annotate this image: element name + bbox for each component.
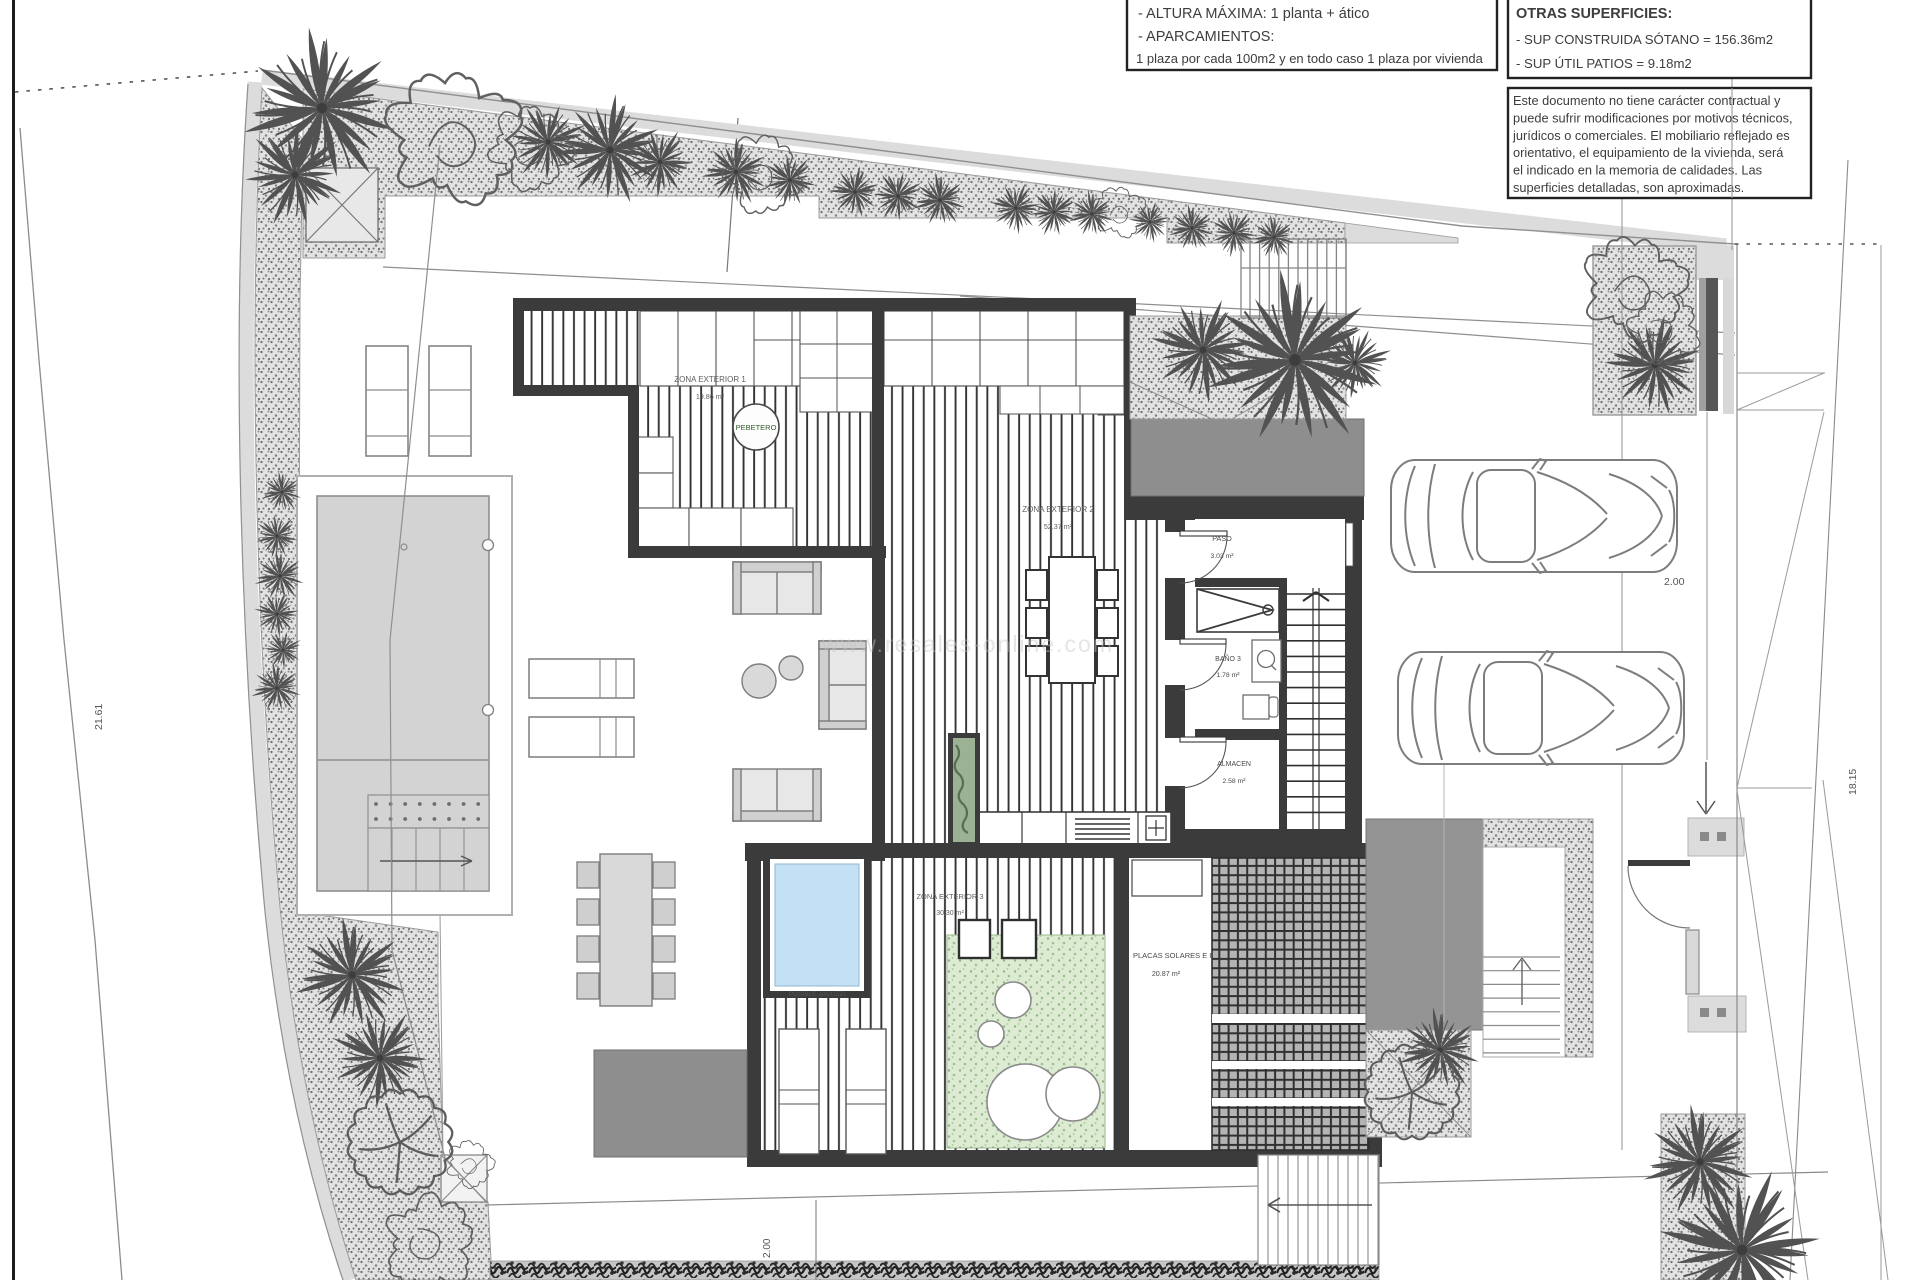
svg-text:ZONA EXTERIOR 2: ZONA EXTERIOR 2 bbox=[1022, 505, 1094, 514]
svg-text:BAÑO 3: BAÑO 3 bbox=[1215, 654, 1241, 663]
svg-text:2.58 m²: 2.58 m² bbox=[1222, 778, 1246, 785]
svg-text:19.86 m²: 19.86 m² bbox=[696, 392, 725, 401]
svg-text:Este documento no tiene caráct: Este documento no tiene carácter contrac… bbox=[1513, 93, 1781, 108]
svg-text:POSIBLE JACUZZI: POSIBLE JACUZZI bbox=[789, 991, 846, 998]
svg-text:- APARCAMIENTOS:: - APARCAMIENTOS: bbox=[1138, 29, 1274, 45]
svg-text:superficies detalladas, son ap: superficies detalladas, son aproximadas. bbox=[1513, 180, 1744, 195]
svg-text:2.00: 2.00 bbox=[1664, 576, 1685, 588]
svg-text:puede sufrir modificaciones po: puede sufrir modificaciones por motivos … bbox=[1513, 110, 1793, 125]
svg-text:ZONA EXTERIOR 1: ZONA EXTERIOR 1 bbox=[674, 375, 746, 384]
svg-text:21.61: 21.61 bbox=[93, 704, 105, 730]
svg-text:orientativo, el equipamiento d: orientativo, el equipamiento de la vivie… bbox=[1513, 145, 1784, 160]
svg-text:30.30 m²: 30.30 m² bbox=[936, 910, 964, 917]
svg-text:- ALTURA MÁXIMA: 1 planta + át: - ALTURA MÁXIMA: 1 planta + ático bbox=[1138, 5, 1369, 22]
svg-text:20.87 m²: 20.87 m² bbox=[1152, 969, 1181, 978]
svg-text:ZONA EXTERIOR 3: ZONA EXTERIOR 3 bbox=[916, 892, 983, 901]
svg-text:1 plaza por cada 100m2 y en to: 1 plaza por cada 100m2 y en todo caso 1 … bbox=[1136, 51, 1484, 66]
svg-text:PEBETERO: PEBETERO bbox=[736, 423, 777, 432]
svg-text:- SUP ÚTIL PATIOS = 9.18m2: - SUP ÚTIL PATIOS = 9.18m2 bbox=[1516, 56, 1692, 71]
svg-text:1.78 m²: 1.78 m² bbox=[1216, 672, 1240, 679]
svg-text:el indicado en la memoria de c: el indicado en la memoria de calidades. … bbox=[1513, 163, 1762, 178]
svg-text:jurídicos o comerciales. El mo: jurídicos o comerciales. El mobiliario r… bbox=[1512, 128, 1790, 143]
svg-text:18.15: 18.15 bbox=[1847, 769, 1859, 795]
svg-text:OTRAS SUPERFICIES:: OTRAS SUPERFICIES: bbox=[1516, 6, 1672, 22]
svg-text:2.00: 2.00 bbox=[762, 1238, 773, 1258]
svg-text:- SUP CONSTRUIDA SÓTANO = 15: - SUP CONSTRUIDA SÓTANO = 156.36m2 bbox=[1516, 32, 1773, 47]
svg-text:www.resales-online.com: www.resales-online.com bbox=[821, 631, 1114, 657]
svg-text:52.37 m²: 52.37 m² bbox=[1044, 522, 1073, 531]
